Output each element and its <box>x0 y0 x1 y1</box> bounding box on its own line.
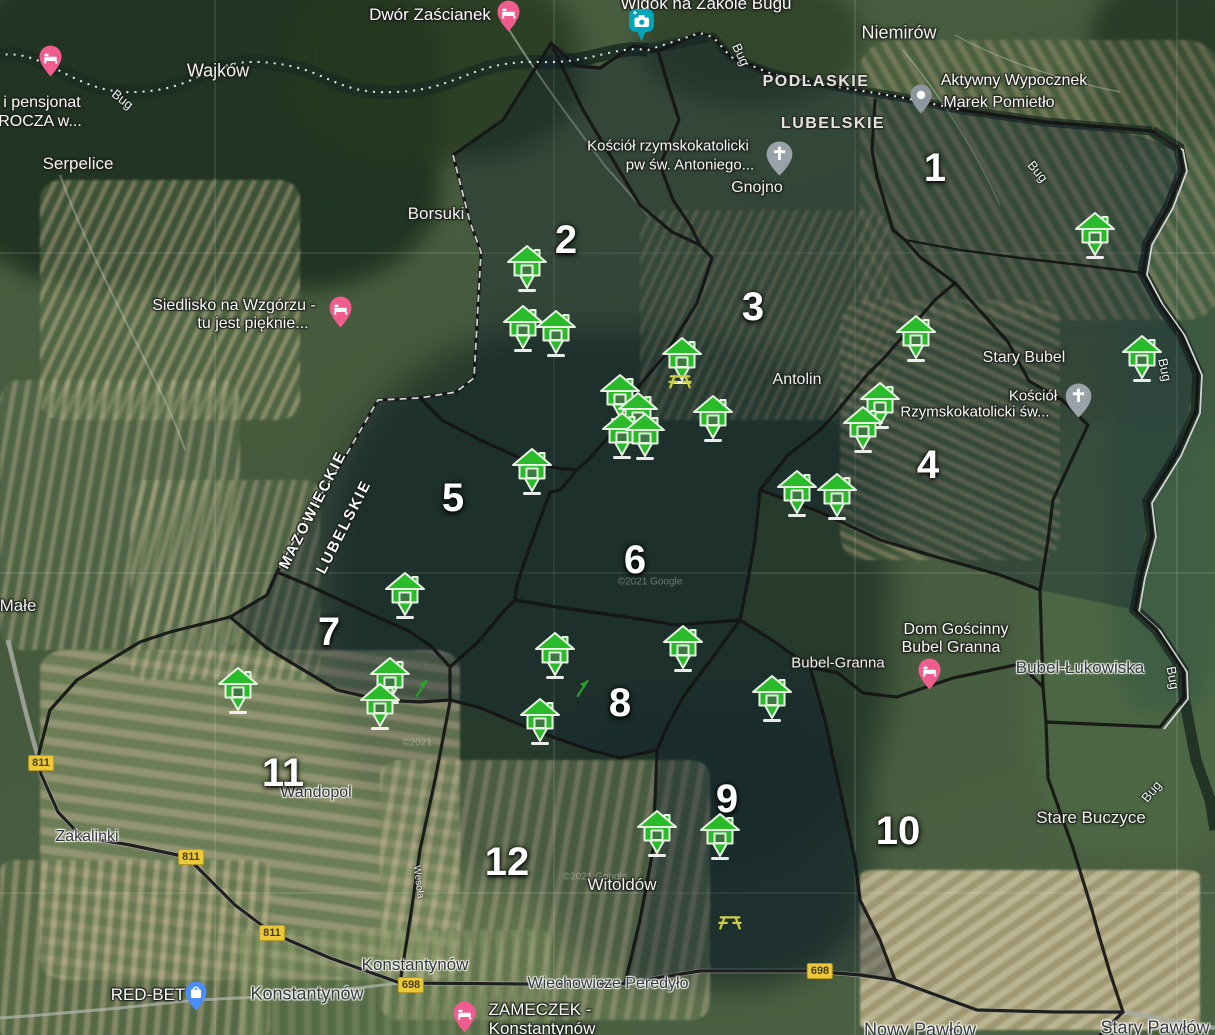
house-marker[interactable] <box>752 675 792 723</box>
house-marker[interactable] <box>385 572 425 620</box>
house-marker[interactable] <box>637 810 677 858</box>
town-label: Wajków <box>187 61 249 82</box>
poi-label: Marek Pomietło <box>943 94 1054 112</box>
town-label: Stare Buczyce <box>1036 808 1146 828</box>
house-marker[interactable] <box>512 448 552 496</box>
river-label: Bug <box>728 41 751 68</box>
town-label: Borsuki <box>408 204 465 224</box>
street-label: Wesoła <box>410 865 425 899</box>
town-label: Bubel-Granna <box>791 654 884 671</box>
poi-label: tu jest pięknie... <box>197 315 308 333</box>
river-label: Bug <box>108 87 135 113</box>
picnic-table-icon[interactable] <box>668 371 692 390</box>
town-label: Stary Bubel <box>983 349 1066 367</box>
house-marker[interactable] <box>817 473 857 521</box>
house-marker[interactable] <box>1122 335 1162 383</box>
lodging-pin[interactable] <box>329 296 352 328</box>
satellite-map[interactable]: ©2021 Google©2021 Google©2021WajkówSerpe… <box>0 0 1215 1035</box>
house-marker[interactable] <box>896 315 936 363</box>
town-label: Bubel-Łukowiska <box>1016 658 1145 678</box>
house-marker[interactable] <box>507 245 547 293</box>
poi-label: Kościół <box>1009 387 1057 404</box>
poi-label: ZAMECZEK - <box>489 1000 592 1020</box>
zone-number-label: 1 <box>924 145 946 191</box>
river-label: Bug <box>1139 778 1165 805</box>
shopping-pin[interactable] <box>185 981 207 1011</box>
green-flag-icon[interactable] <box>413 678 431 698</box>
poi-label: Rzymskokatolicki św... <box>900 403 1049 420</box>
poi-label: ROCZA w... <box>0 113 82 131</box>
house-marker[interactable] <box>218 667 258 715</box>
poi-label: Bubel Granna <box>902 639 1001 657</box>
poi-label: pw św. Antoniego... <box>626 156 754 173</box>
road-shield: 698 <box>398 977 424 993</box>
house-marker[interactable] <box>693 395 733 443</box>
poi-label: Kościół rzymskokatolicki <box>587 137 749 154</box>
map-markers-layer: ©2021 Google©2021 Google©2021WajkówSerpe… <box>0 0 1215 1035</box>
poi-label: RED-BET <box>111 985 186 1005</box>
province-label: LUBELSKIE <box>781 115 885 133</box>
poi-label: i pensjonat <box>3 94 80 112</box>
province-label: PODLASKIE <box>763 73 870 91</box>
town-label: Małe <box>0 596 36 616</box>
church-pin[interactable] <box>766 141 793 176</box>
town-label: Zakalinki <box>55 828 118 846</box>
house-marker[interactable] <box>843 406 883 454</box>
poi-label: Siedlisko na Wzgórzu - <box>152 297 316 315</box>
town-label: Wiechowicze Peredyło <box>528 975 689 993</box>
house-marker[interactable] <box>535 632 575 680</box>
town-label: Konstantynów <box>250 984 363 1005</box>
zone-number-label: 2 <box>555 217 577 263</box>
house-marker[interactable] <box>777 470 817 518</box>
generic-pin[interactable] <box>910 84 932 114</box>
house-marker[interactable] <box>520 698 560 746</box>
map-watermark: ©2021 <box>402 737 432 749</box>
zone-number-label: 6 <box>624 537 646 583</box>
zone-number-label: 11 <box>262 750 304 796</box>
road-shield: 811 <box>28 755 54 771</box>
picnic-table-icon[interactable] <box>718 912 742 931</box>
zone-number-label: 12 <box>485 839 530 885</box>
river-label: Bug <box>1163 665 1182 690</box>
house-marker[interactable] <box>625 413 665 461</box>
town-label: Konstantynów <box>362 955 469 975</box>
zone-number-label: 7 <box>318 609 340 655</box>
poi-label: Aktywny Wypocznek <box>941 72 1088 90</box>
road-shield: 698 <box>807 963 833 979</box>
house-marker[interactable] <box>700 813 740 861</box>
house-marker[interactable] <box>536 310 576 358</box>
church-pin[interactable] <box>1065 383 1092 418</box>
lodging-pin[interactable] <box>453 1001 476 1033</box>
house-marker[interactable] <box>1075 212 1115 260</box>
lodging-pin[interactable] <box>918 658 941 690</box>
zone-number-label: 3 <box>742 284 764 330</box>
poi-label: Konstantynów <box>489 1019 596 1035</box>
town-label: Witoldów <box>588 875 657 895</box>
town-label: Nowy Pawłów <box>864 1020 976 1035</box>
road-shield: 811 <box>178 849 204 865</box>
zone-number-label: 10 <box>876 808 921 854</box>
green-flag-icon[interactable] <box>574 678 592 698</box>
town-label: Serpelice <box>43 154 114 174</box>
zone-number-label: 4 <box>917 442 939 488</box>
town-label: Stary Pawłów <box>1100 1018 1209 1035</box>
camera-pin[interactable] <box>628 8 655 44</box>
zone-number-label: 8 <box>609 680 631 726</box>
lodging-pin[interactable] <box>497 0 520 32</box>
town-label: Niemirów <box>861 23 936 44</box>
town-label: Gnojno <box>731 179 783 197</box>
zone-number-label: 5 <box>442 475 464 521</box>
town-label: Antolin <box>773 371 822 389</box>
lodging-pin[interactable] <box>39 45 62 77</box>
road-shield: 811 <box>259 925 285 941</box>
poi-label: Dom Gościnny <box>904 621 1009 639</box>
house-marker[interactable] <box>663 625 703 673</box>
house-marker[interactable] <box>360 683 400 731</box>
poi-label: Dwór Zaścianek <box>369 5 491 25</box>
river-label: Bug <box>1024 158 1050 185</box>
